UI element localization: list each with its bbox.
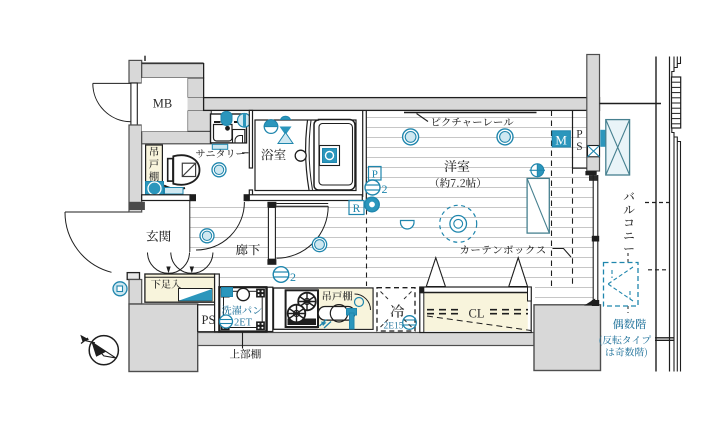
svg-text:2ET: 2ET (234, 318, 253, 329)
svg-text:P: P (576, 129, 582, 141)
svg-text:CL: CL (469, 307, 485, 321)
svg-text:PS: PS (202, 313, 216, 327)
svg-text:2E15: 2E15 (384, 322, 404, 332)
svg-text:2: 2 (290, 270, 296, 284)
svg-text:M: M (555, 132, 567, 147)
svg-text:2: 2 (382, 182, 388, 196)
svg-text:P: P (372, 169, 378, 181)
svg-text:S: S (576, 141, 582, 153)
svg-text:MB: MB (153, 97, 172, 111)
svg-text:R: R (353, 203, 361, 215)
